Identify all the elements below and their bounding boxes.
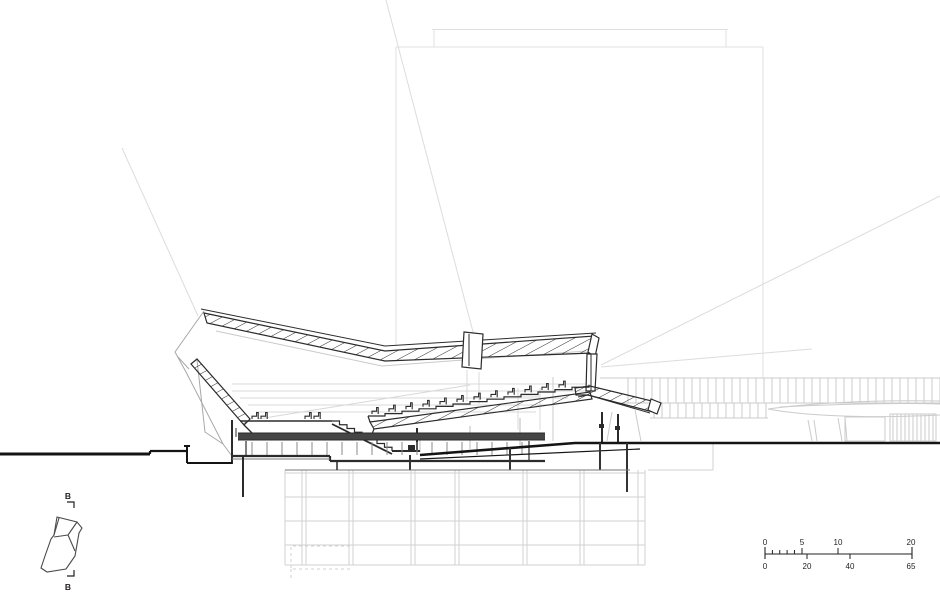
- scale-m-20: 20: [907, 538, 916, 547]
- seat-glyph: [406, 403, 412, 409]
- screen-hatch: [893, 414, 933, 441]
- seat-glyph: [457, 396, 463, 402]
- below-grade-walls: [410, 443, 627, 492]
- dock-pit: [184, 446, 232, 463]
- section-label-bottom: B: [65, 582, 71, 592]
- ground: [0, 443, 940, 492]
- scale-ft-40: 40: [846, 562, 855, 571]
- scale-m-5: 5: [800, 538, 805, 547]
- background-braces: [607, 410, 641, 441]
- basement-right-extension: [648, 443, 713, 470]
- footprint-facets: [54, 518, 77, 551]
- seat-glyph: [542, 384, 548, 390]
- scale-ft-65: 65: [907, 562, 916, 571]
- ground-left-step: [150, 451, 187, 454]
- mid-floor-seats-b: [305, 413, 320, 419]
- scale-ticks-bottom: [807, 554, 850, 559]
- facade-band-foot: [244, 425, 252, 433]
- seat-glyph: [491, 391, 497, 397]
- seat-glyph: [314, 413, 320, 419]
- guide-line: [601, 349, 812, 367]
- section-drawing-canvas: B B 0 5 10 20 0 20 40 65: [0, 0, 940, 600]
- ground-right-under: [420, 449, 640, 459]
- scale-major-ticks-top: [802, 548, 838, 554]
- ground-right: [420, 443, 940, 455]
- guide-line: [601, 196, 940, 365]
- seating-tier: [368, 381, 592, 452]
- section-tick-bottom: [67, 570, 74, 576]
- mullion-row-upper: [628, 378, 940, 403]
- basement-outer-walls: [285, 470, 645, 565]
- scale-bar: 0 5 10 20 0 20 40 65: [763, 538, 916, 571]
- seat-glyph: [389, 405, 395, 411]
- section-tick-top: [67, 502, 74, 508]
- lobby: [232, 433, 545, 497]
- seat-glyph: [508, 388, 514, 394]
- scale-ft-0: 0: [763, 562, 768, 571]
- scale-m-10: 10: [834, 538, 843, 547]
- radiating-guide-lines: [122, 0, 940, 367]
- ramp-newel: [408, 445, 415, 452]
- seat-glyph: [372, 408, 378, 414]
- seat-glyph: [423, 400, 429, 406]
- key-plan: B B: [41, 491, 82, 592]
- footprint-outline: [41, 517, 82, 572]
- facade-left-band: [191, 359, 252, 464]
- seat-glyph: [252, 413, 258, 419]
- facade-truss-band: [191, 359, 250, 425]
- seat-glyph: [440, 398, 446, 404]
- lobby-slab: [238, 433, 545, 440]
- canopy-lens-bottom: [768, 409, 940, 417]
- canopy-lens-top: [768, 401, 940, 409]
- background-elevation-right: [553, 377, 940, 441]
- roof-upper: [201, 309, 599, 369]
- key-plan-footprint: [41, 517, 82, 572]
- background-tower: [396, 30, 763, 379]
- column-node: [599, 424, 604, 428]
- scale-ft-20: 20: [803, 562, 812, 571]
- scale-minor-ticks: [772, 550, 794, 554]
- guide-line: [122, 148, 198, 316]
- tower-parapet: [432, 30, 728, 48]
- seat-glyph: [305, 413, 311, 419]
- mullion-row-lower: [654, 403, 766, 418]
- basement-structure: [285, 443, 713, 578]
- balcony-lines: [232, 384, 586, 412]
- scale-m-0: 0: [763, 538, 768, 547]
- canopy-posts: [808, 418, 847, 441]
- basement-columns: [302, 470, 638, 565]
- lobby-glazing-mullions: [252, 442, 522, 455]
- skylight-shaft-faint: [467, 370, 479, 404]
- column-node: [615, 426, 620, 430]
- section-label-top: B: [65, 491, 71, 501]
- basement-dashed-outline: [291, 546, 350, 578]
- background-kiosk: [845, 417, 885, 441]
- basement-floor-lines: [285, 473, 645, 565]
- roof-link-wall: [586, 354, 597, 391]
- guide-line: [386, 0, 477, 347]
- roof-skylight-box: [462, 332, 483, 369]
